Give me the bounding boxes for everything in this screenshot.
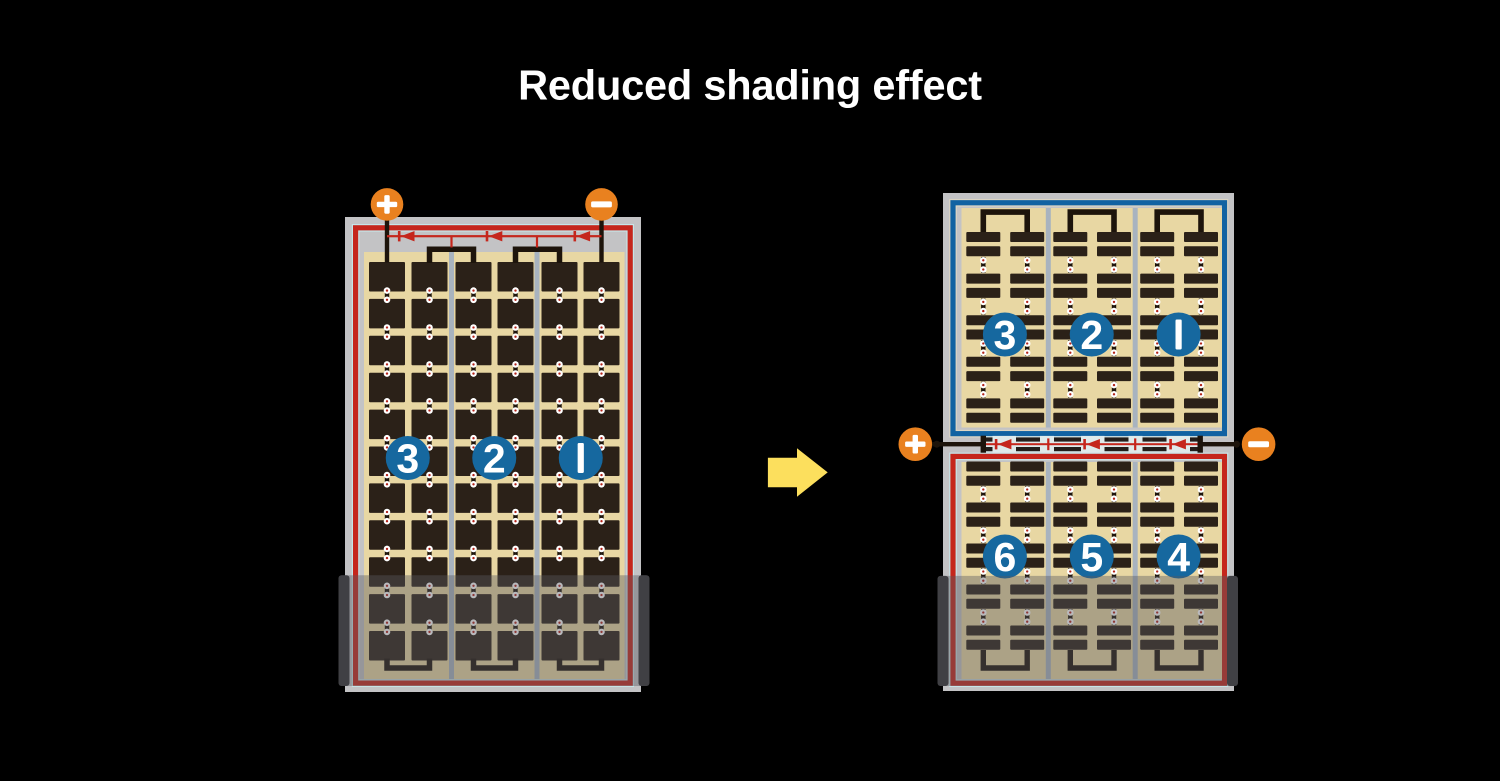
svg-text:Reduced shading effect: Reduced shading effect bbox=[518, 62, 982, 109]
svg-text:2: 2 bbox=[483, 436, 506, 482]
svg-text:3: 3 bbox=[993, 312, 1016, 358]
svg-text:4: 4 bbox=[1167, 534, 1190, 580]
svg-text:3: 3 bbox=[396, 436, 419, 482]
svg-text:6: 6 bbox=[993, 534, 1016, 580]
svg-text:2: 2 bbox=[1080, 312, 1103, 358]
svg-text:5: 5 bbox=[1080, 534, 1103, 580]
